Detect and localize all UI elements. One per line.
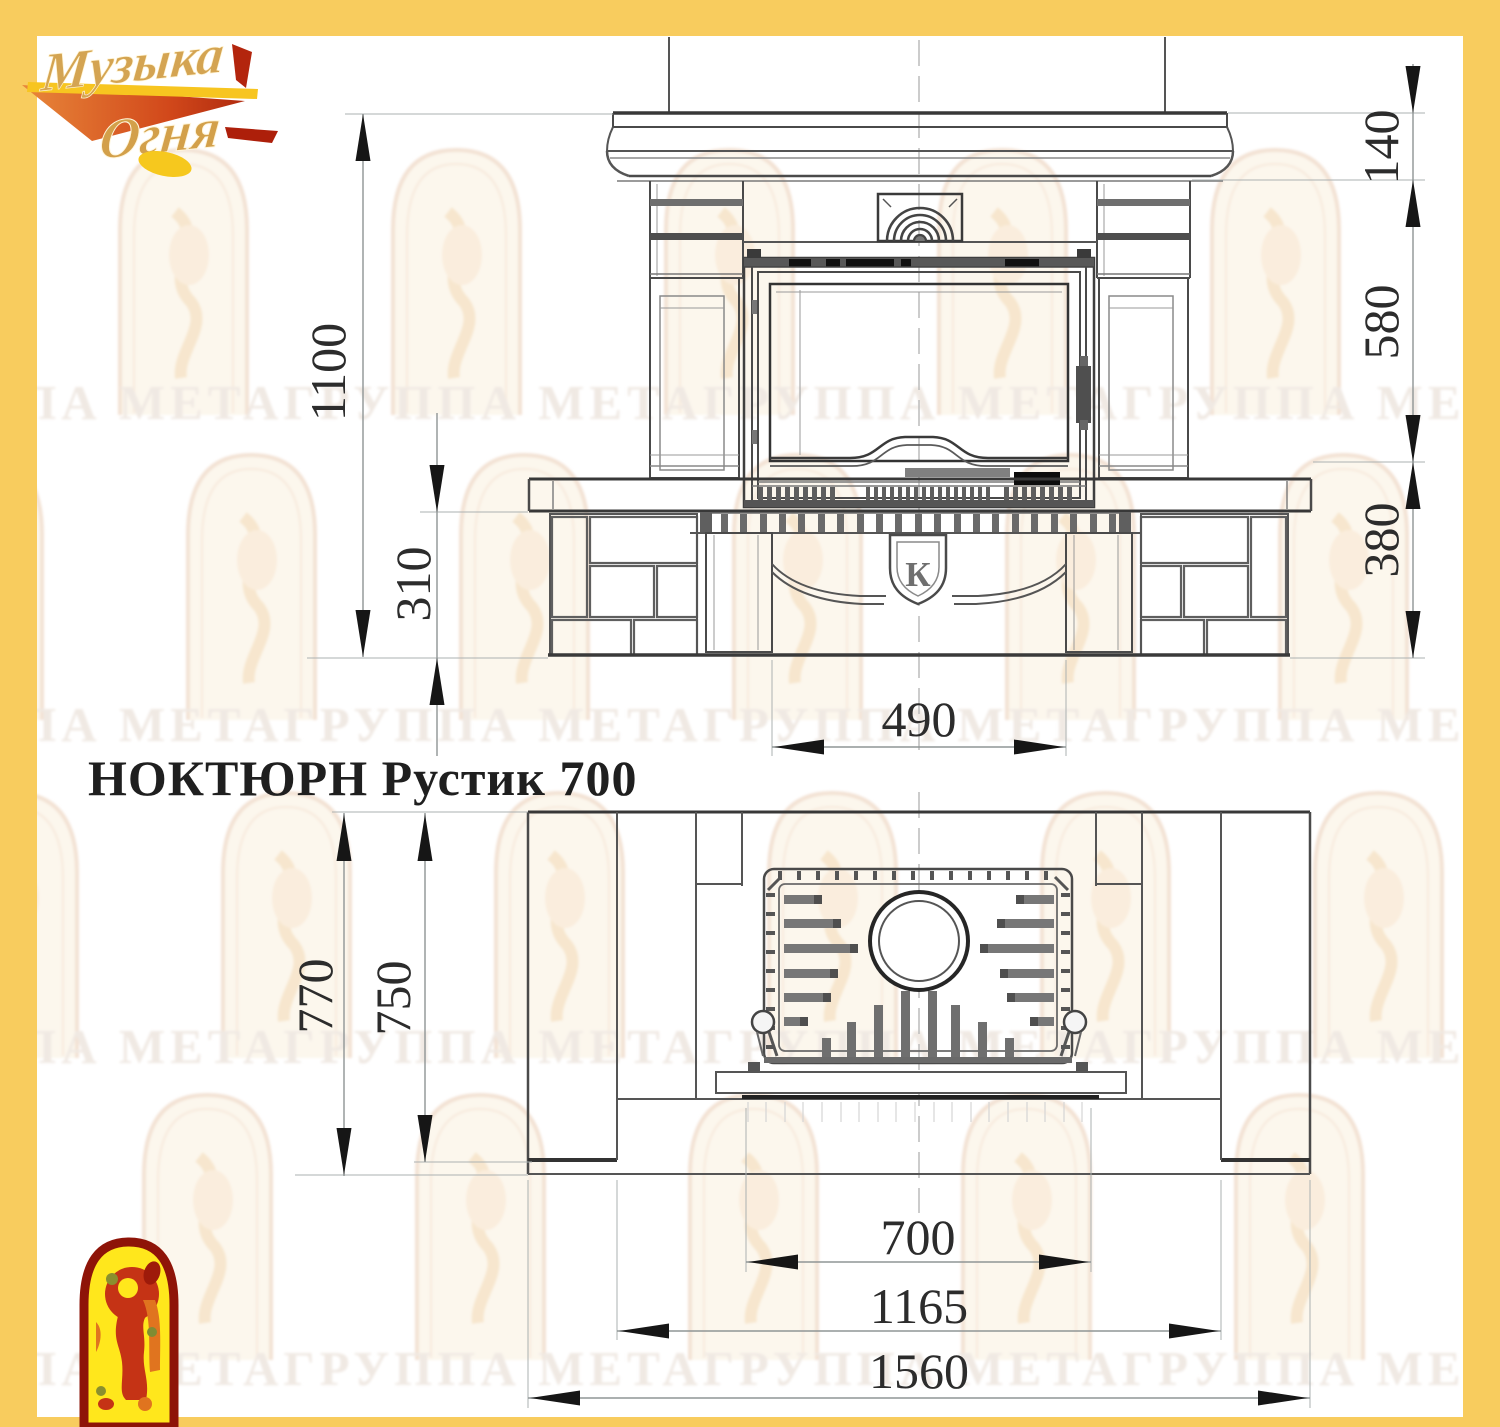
svg-text:К: К bbox=[905, 555, 931, 594]
svg-text:ППА МЕТАГРУППА МЕТАГРУППА МЕТА: ППА МЕТАГРУППА МЕТАГРУППА МЕТАГРУППА МЕТ… bbox=[0, 697, 1500, 752]
svg-text:380: 380 bbox=[1353, 503, 1409, 578]
svg-text:700: 700 bbox=[881, 1209, 956, 1265]
svg-text:НОКТЮРН Рустик 700: НОКТЮРН Рустик 700 bbox=[88, 750, 638, 806]
svg-text:ППА МЕТАГРУППА МЕТАГРУППА МЕТА: ППА МЕТАГРУППА МЕТАГРУППА МЕТАГРУППА МЕТ… bbox=[0, 1341, 1500, 1396]
svg-text:140: 140 bbox=[1353, 110, 1409, 185]
svg-text:310: 310 bbox=[385, 547, 441, 622]
svg-text:ППА МЕТАГРУППА МЕТАГРУППА МЕТА: ППА МЕТАГРУППА МЕТАГРУППА МЕТАГРУППА МЕТ… bbox=[0, 375, 1500, 430]
svg-text:580: 580 bbox=[1353, 285, 1409, 360]
svg-text:750: 750 bbox=[365, 961, 421, 1036]
svg-text:1100: 1100 bbox=[300, 323, 356, 421]
svg-text:1560: 1560 bbox=[869, 1343, 969, 1399]
svg-text:770: 770 bbox=[287, 959, 343, 1034]
svg-text:1165: 1165 bbox=[870, 1278, 968, 1334]
svg-text:490: 490 bbox=[882, 691, 957, 747]
